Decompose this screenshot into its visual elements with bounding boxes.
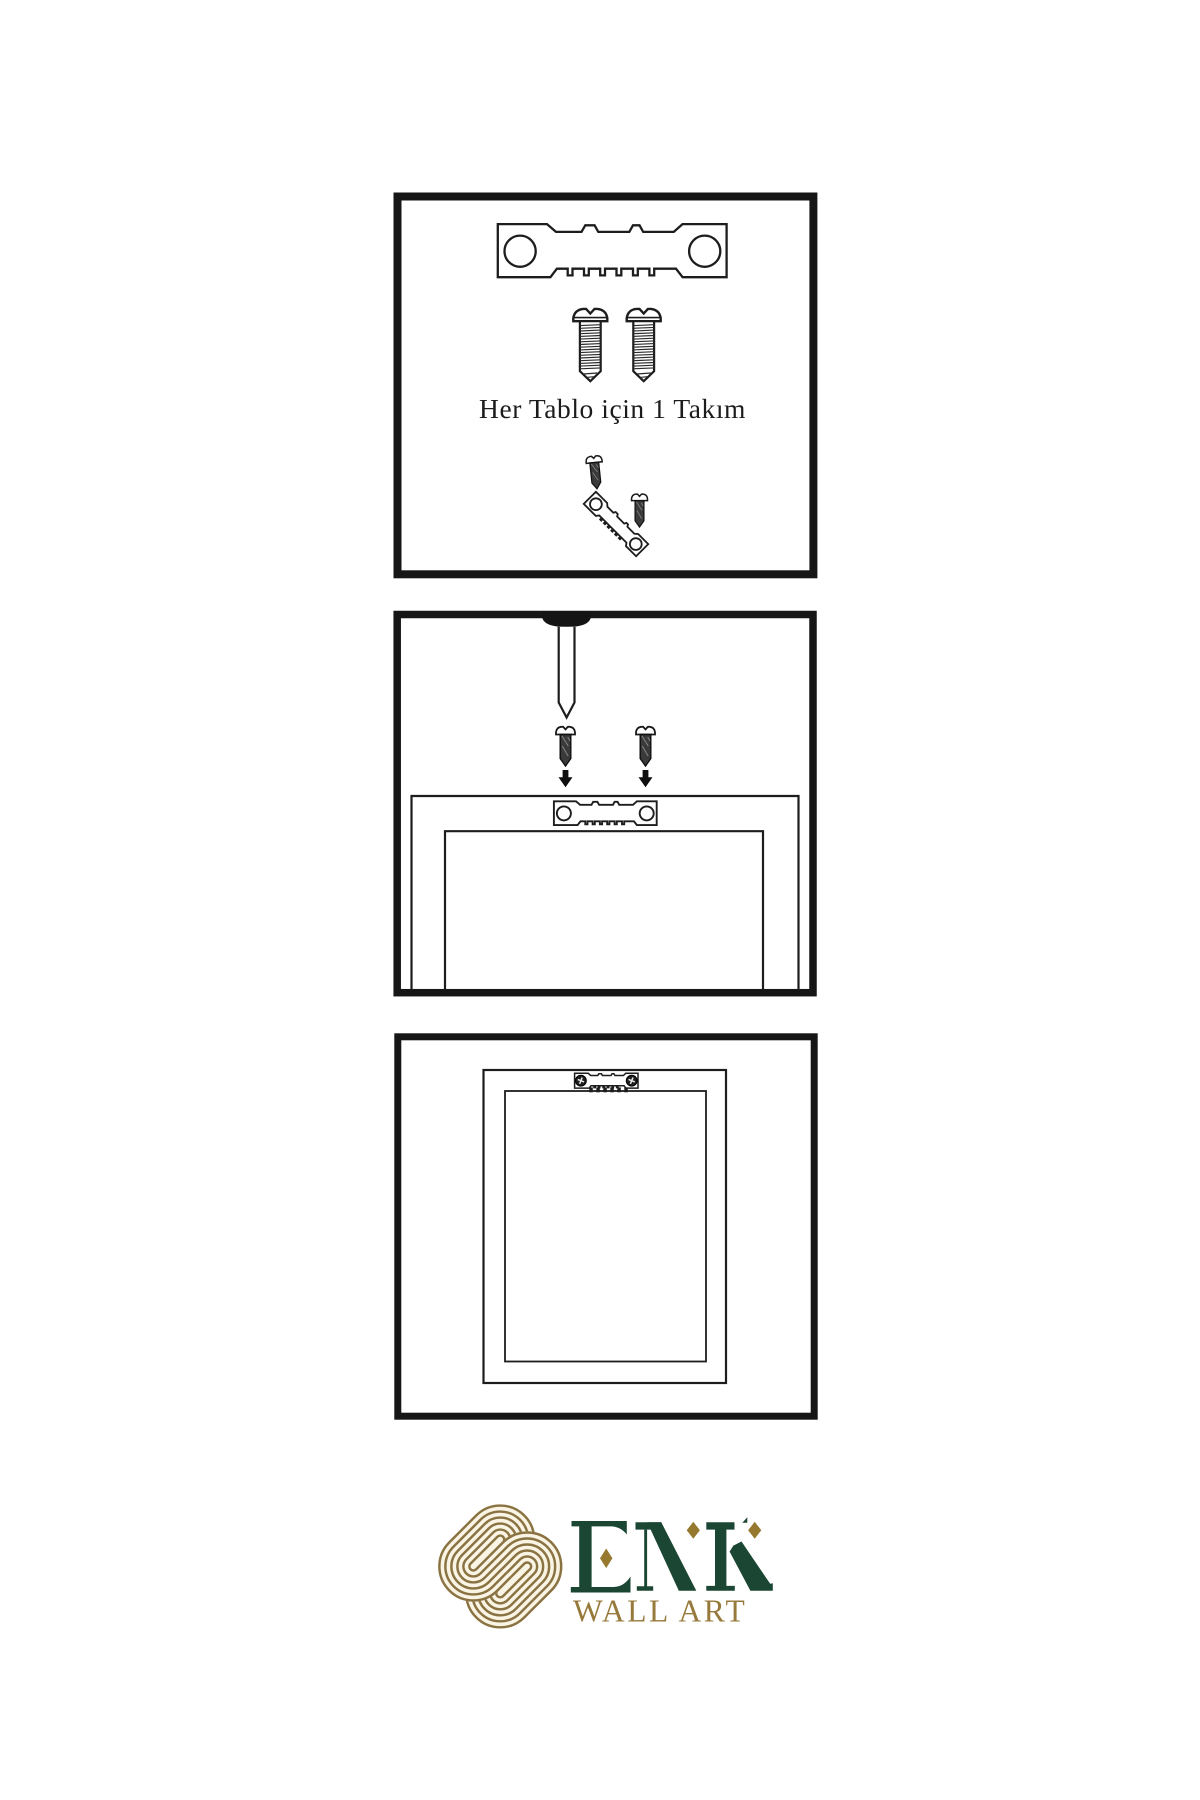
svg-text:Her Tablo için 1 Takım: Her Tablo için 1 Takım (479, 393, 746, 424)
svg-text:WALL ART: WALL ART (573, 1594, 747, 1629)
